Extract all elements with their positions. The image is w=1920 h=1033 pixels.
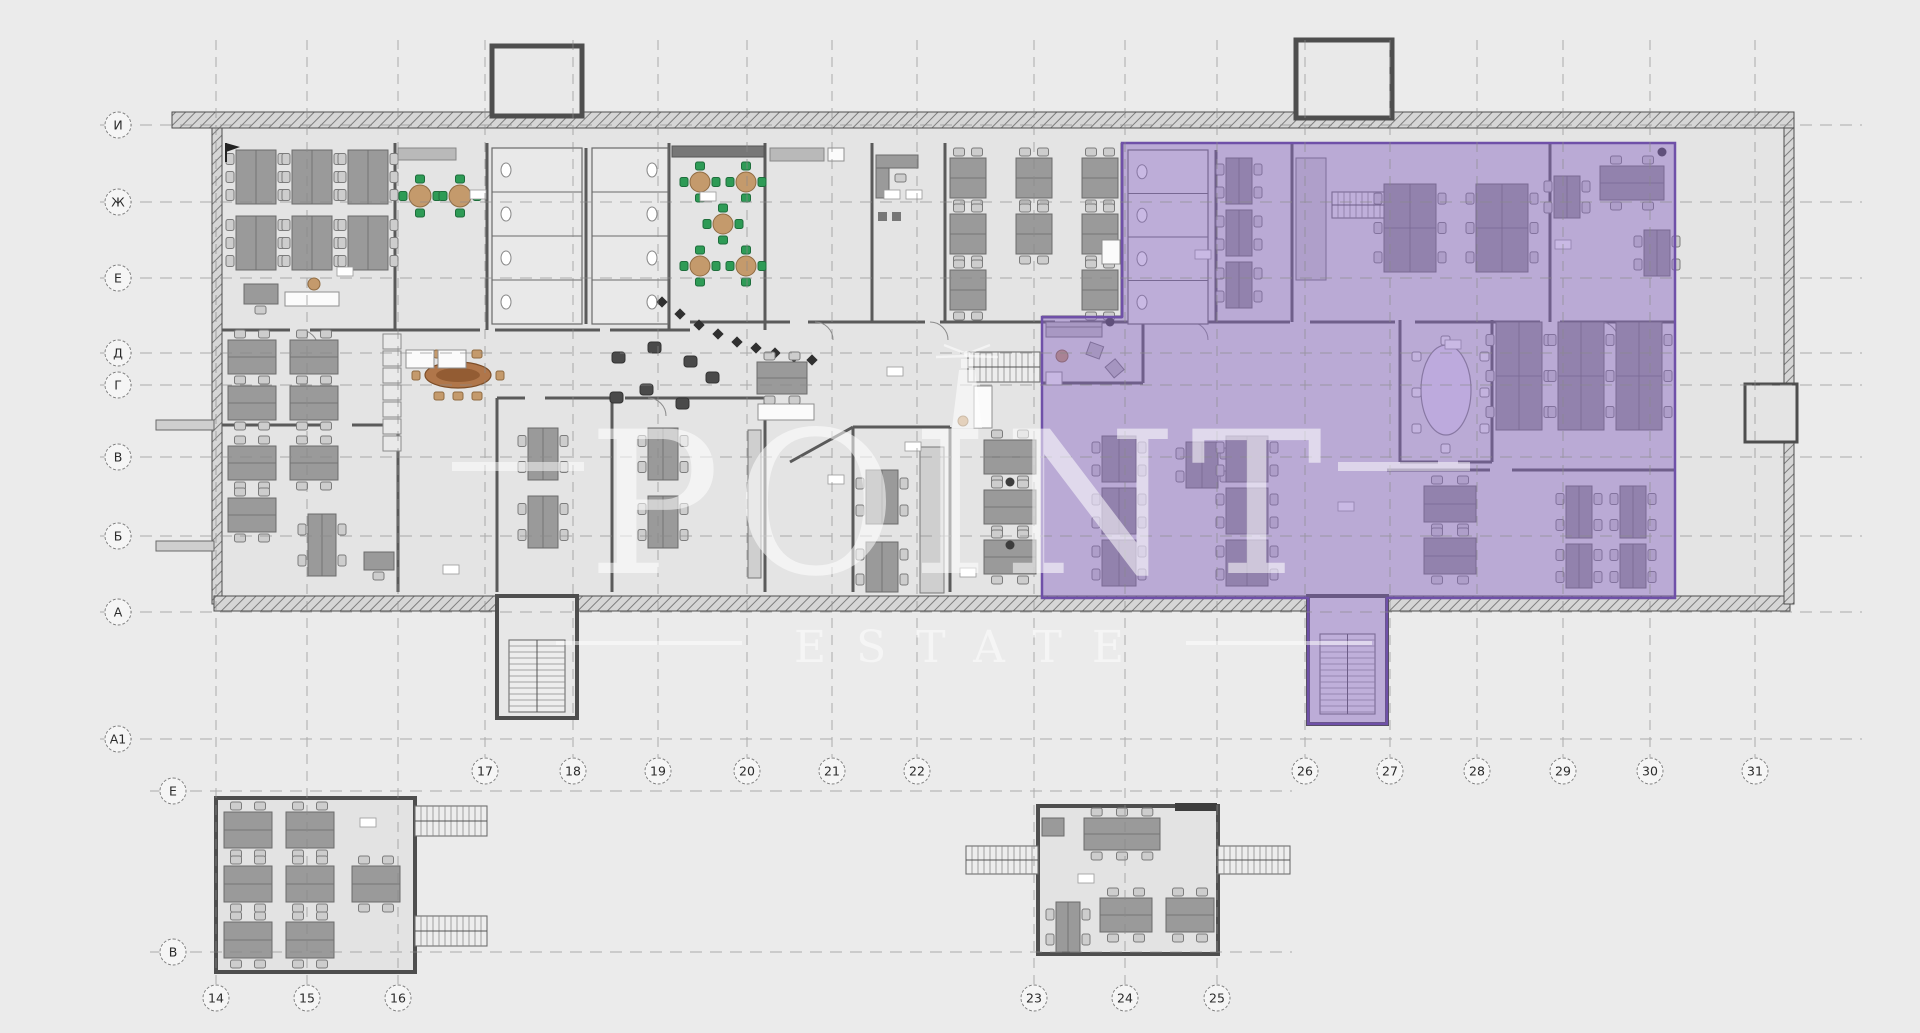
grid-bubble-15: 15 <box>294 985 321 1012</box>
grid-bubble-20: 20 <box>734 758 761 785</box>
grid-bubble-21: 21 <box>819 758 846 785</box>
floorplan-drawing <box>0 0 1920 1033</box>
grid-bubble-25: 25 <box>1204 985 1231 1012</box>
grid-bubble-26: 26 <box>1292 758 1319 785</box>
floorplan-canvas: POINT ESTATE ИЖЕДГВБАА117181920212226272… <box>0 0 1920 1033</box>
grid-bubble-Е: Е <box>160 778 187 805</box>
grid-bubble-Е: Е <box>105 265 132 292</box>
grid-bubble-18: 18 <box>560 758 587 785</box>
grid-bubble-24: 24 <box>1112 985 1139 1012</box>
grid-bubble-31: 31 <box>1742 758 1769 785</box>
grid-bubble-14: 14 <box>203 985 230 1012</box>
grid-bubble-22: 22 <box>904 758 931 785</box>
grid-bubble-А: А <box>105 599 132 626</box>
grid-bubble-19: 19 <box>645 758 672 785</box>
grid-bubble-29: 29 <box>1550 758 1577 785</box>
grid-bubble-Б: Б <box>105 523 132 550</box>
grid-bubble-И: И <box>105 112 132 139</box>
grid-bubble-Ж: Ж <box>105 189 132 216</box>
grid-bubble-Г: Г <box>105 372 132 399</box>
grid-bubble-23: 23 <box>1021 985 1048 1012</box>
grid-bubble-27: 27 <box>1377 758 1404 785</box>
grid-bubble-17: 17 <box>472 758 499 785</box>
grid-bubble-В: В <box>160 939 187 966</box>
grid-bubble-30: 30 <box>1637 758 1664 785</box>
grid-bubble-16: 16 <box>385 985 412 1012</box>
grid-bubble-А1: А1 <box>105 726 132 753</box>
grid-bubble-Д: Д <box>105 340 132 367</box>
grid-bubble-28: 28 <box>1464 758 1491 785</box>
grid-bubble-В: В <box>105 444 132 471</box>
